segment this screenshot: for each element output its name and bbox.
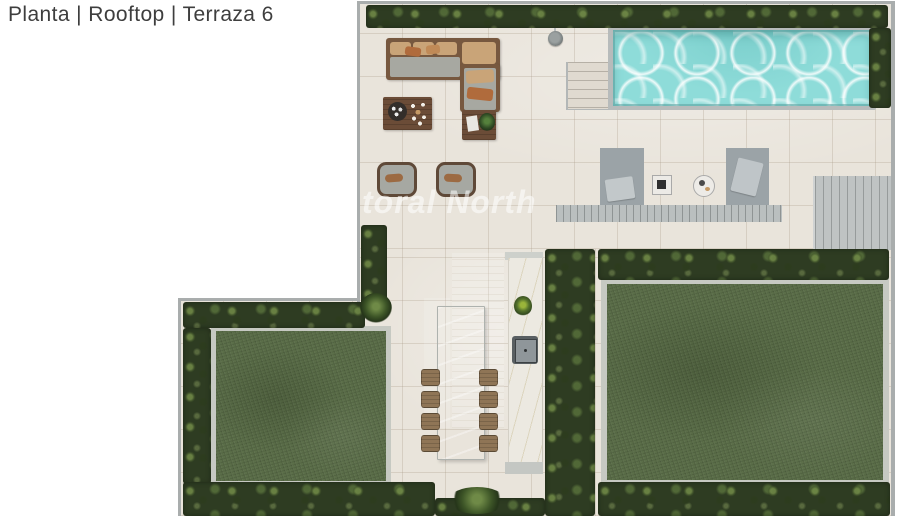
armchair-pillow	[444, 174, 462, 183]
dining-chair	[479, 413, 498, 430]
towel	[730, 157, 763, 196]
bottom-plant-cluster	[448, 487, 506, 514]
hedge-bottom-left	[183, 482, 435, 516]
sun-lounger	[600, 148, 644, 205]
table-item	[699, 180, 705, 186]
left-lawn-grass	[216, 331, 386, 481]
hedge-center-column	[545, 249, 595, 516]
wall-top	[357, 1, 895, 4]
dining-chair	[421, 435, 440, 452]
towel	[605, 176, 636, 202]
square-side-table	[652, 175, 672, 195]
sofa-corner-cushion	[462, 42, 496, 64]
round-side-table	[693, 175, 715, 197]
potted-plant	[479, 113, 495, 131]
right-lawn-grass	[607, 284, 883, 480]
dining-chair	[421, 413, 440, 430]
wall-left-wing-top	[178, 298, 360, 301]
corner-plant	[360, 293, 392, 323]
dining-chair	[421, 391, 440, 408]
watermark-text: toral North	[362, 184, 537, 221]
sink	[512, 336, 538, 364]
page-title: Planta | Rooftop | Terraza 6	[8, 3, 274, 27]
sofa-pillow	[426, 44, 441, 54]
dining-chair	[479, 391, 498, 408]
hedge-left-wing-top	[183, 302, 365, 328]
serving-tray	[388, 102, 407, 121]
floorplan-canvas: Planta | Rooftop | Terraza 6	[0, 0, 900, 516]
shower-head	[548, 31, 563, 46]
hedge-right-lawn-top	[598, 249, 889, 280]
hedge-left-wing-left	[183, 328, 211, 484]
sun-lounger	[726, 148, 769, 205]
dining-chair	[479, 435, 498, 452]
table-tray	[657, 180, 666, 189]
table-item	[705, 187, 710, 191]
counter-cap-bottom	[505, 462, 543, 474]
dining-chair	[479, 369, 498, 386]
wall-right	[891, 1, 895, 516]
dining-table	[437, 306, 485, 460]
sink-drain	[524, 349, 527, 352]
sofa-seat	[390, 57, 460, 77]
coffee-table	[383, 97, 432, 130]
wall-left-wing-left	[178, 298, 181, 516]
wall-left-upper	[357, 1, 360, 302]
magazine	[466, 115, 479, 131]
hedge-pool-right	[869, 28, 891, 108]
chaise-pillow	[466, 69, 495, 84]
deck-square	[815, 176, 891, 250]
side-table	[462, 110, 496, 140]
hedge-top	[366, 5, 888, 28]
sink-basin	[515, 339, 537, 363]
pool-water	[613, 30, 871, 106]
stairs	[566, 62, 614, 110]
chaise-pillow	[466, 87, 493, 102]
deck-strip	[556, 205, 782, 222]
counter-plant	[514, 296, 532, 316]
hedge-bottom-right	[598, 482, 890, 516]
dining-chair	[421, 369, 440, 386]
cups	[409, 101, 429, 126]
armchair-pillow	[385, 173, 404, 182]
